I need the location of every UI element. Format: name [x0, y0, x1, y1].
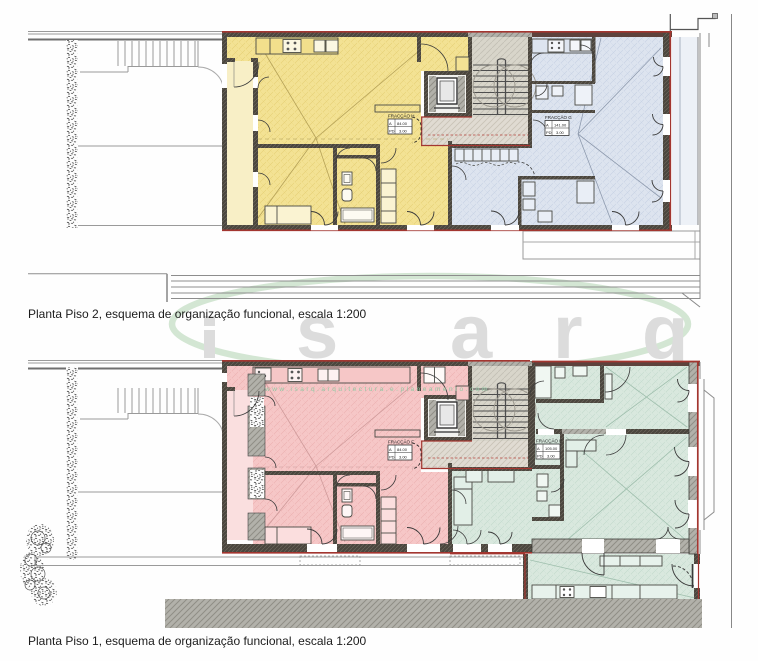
svg-text:3.00: 3.00: [547, 454, 556, 459]
svg-text:Planta Piso 2, esquema de orga: Planta Piso 2, esquema de organização fu…: [28, 307, 367, 321]
svg-text:FRACÇÃO E: FRACÇÃO E: [536, 438, 562, 444]
svg-text:PD: PD: [537, 454, 543, 459]
svg-text:FRACÇÃO G: FRACÇÃO G: [545, 114, 572, 120]
svg-text:FRACÇÃO F: FRACÇÃO F: [388, 439, 414, 445]
svg-text:Planta Piso 1, esquema de orga: Planta Piso 1, esquema de organização fu…: [28, 634, 367, 648]
svg-text:A: A: [389, 447, 392, 452]
svg-text:141.00: 141.00: [554, 123, 567, 128]
svg-text:PD: PD: [389, 455, 395, 460]
svg-text:www.isarq.arquitectura.e.plane: www.isarq.arquitectura.e.planeamento.com: [264, 386, 490, 393]
svg-text:A: A: [389, 121, 392, 126]
svg-text:A: A: [546, 123, 549, 128]
svg-text:A: A: [537, 446, 540, 451]
svg-text:84.00: 84.00: [397, 447, 408, 452]
svg-text:FRACÇÃO H: FRACÇÃO H: [388, 113, 415, 119]
svg-text:105.00: 105.00: [545, 446, 558, 451]
svg-text:3.00: 3.00: [556, 130, 565, 135]
svg-text:PD: PD: [389, 129, 395, 134]
svg-text:84.00: 84.00: [397, 121, 408, 126]
svg-text:3.00: 3.00: [399, 129, 408, 134]
svg-text:PD: PD: [546, 130, 552, 135]
svg-text:3.00: 3.00: [399, 455, 408, 460]
